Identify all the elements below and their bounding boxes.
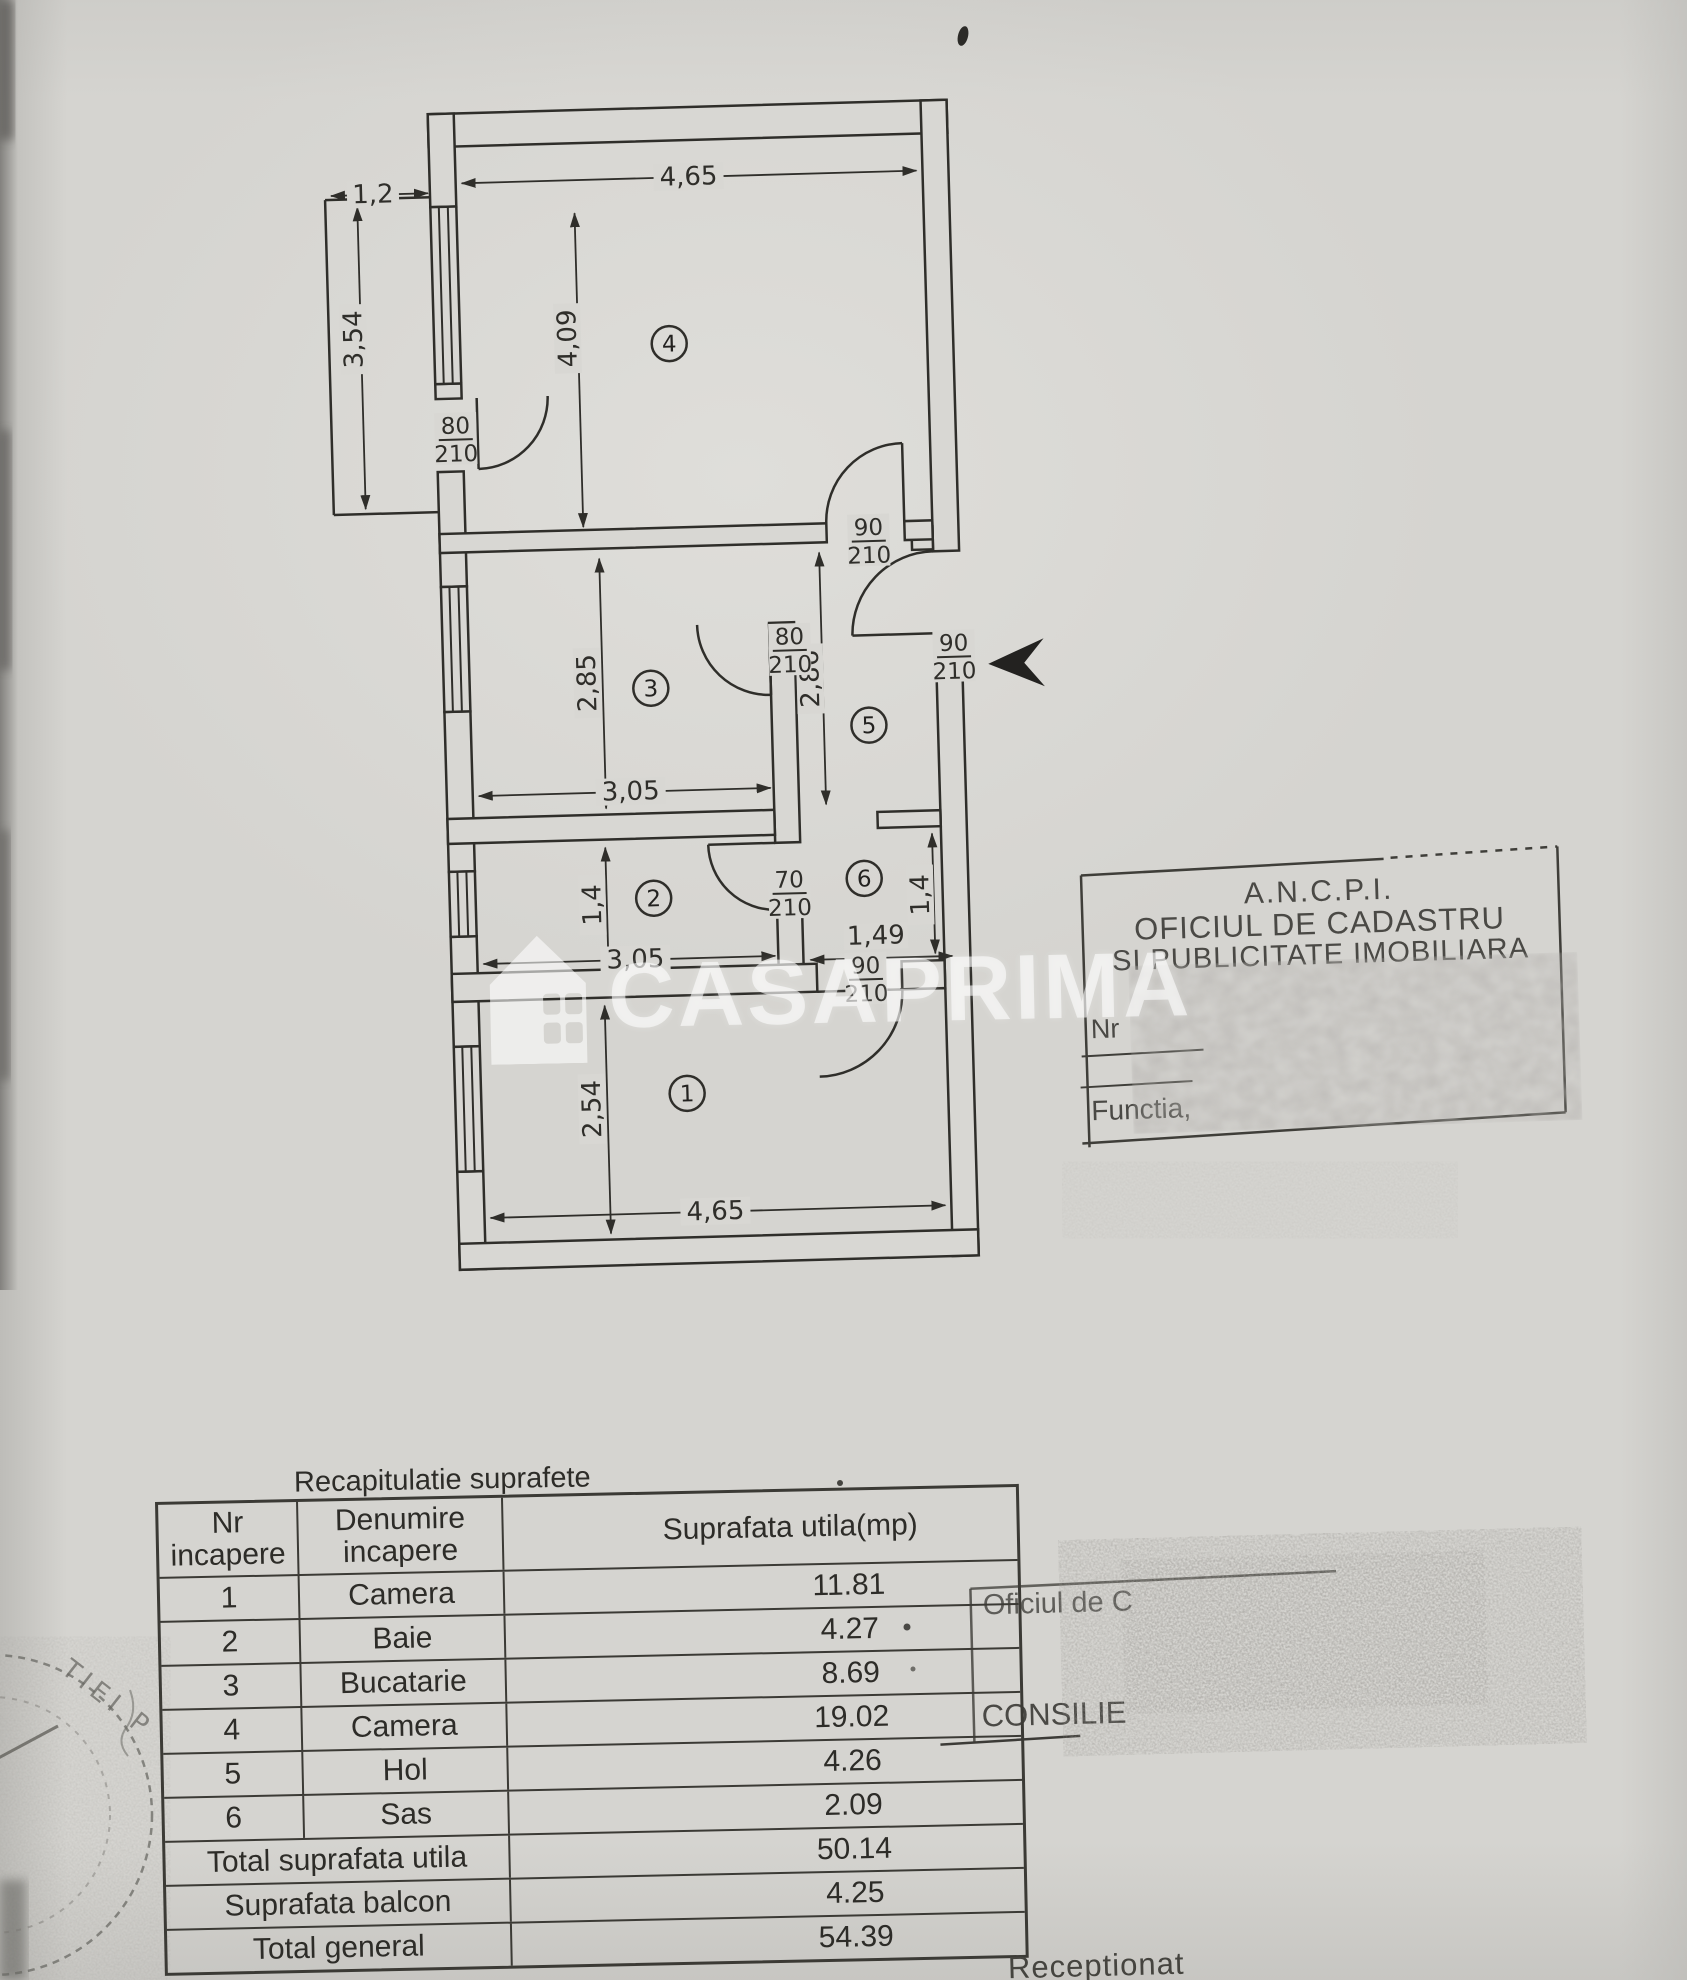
door-label-entry: 90 210 bbox=[931, 629, 976, 685]
ancpi-stamp: A.N.C.P.I. OFICIUL DE CADASTRU SI PUBLIC… bbox=[1074, 846, 1567, 1147]
room-3-number: 3 bbox=[643, 676, 658, 702]
row5-nr: 5 bbox=[163, 1752, 302, 1797]
room-2-label: 2 bbox=[636, 880, 672, 916]
door-label-room3: 80 210 bbox=[767, 623, 812, 679]
surface-table: Nr incapere Denumire incapere Suprafata … bbox=[155, 1484, 1029, 1976]
room-6-label: 6 bbox=[846, 860, 882, 896]
door-room1-height: 210 bbox=[844, 981, 889, 1008]
header-nr-line1: Nr bbox=[158, 1506, 297, 1541]
window-room1 bbox=[454, 1046, 483, 1172]
floor-plan: 1,2 3,54 4,65 4,09 2,85 3,05 2,86 1,4 3,… bbox=[323, 97, 1061, 1272]
door-entry-width: 90 bbox=[939, 630, 969, 657]
receptionat-label: Receptionat bbox=[1008, 1946, 1185, 1980]
door-room2-width: 70 bbox=[774, 867, 804, 894]
window-balcony bbox=[430, 206, 461, 384]
header-denumire-incapere: Denumire incapere bbox=[296, 1498, 502, 1574]
row1-nr: 1 bbox=[160, 1576, 299, 1621]
room-5-label: 5 bbox=[851, 707, 887, 743]
header-suprafata: Suprafata utila(mp) bbox=[501, 1487, 1017, 1570]
door-label-room4: 90 210 bbox=[846, 513, 891, 569]
door-room3-height: 210 bbox=[768, 652, 813, 679]
office-stamp: Oficiul de C CONSILIE bbox=[935, 1537, 1562, 1749]
door-balcony bbox=[477, 396, 550, 469]
total-general-value: 54.39 bbox=[510, 1913, 1026, 1966]
door-room1-width: 90 bbox=[851, 953, 881, 980]
dim-balcony-width: 1,2 bbox=[352, 179, 394, 210]
room-5-number: 5 bbox=[861, 713, 876, 739]
room-4-number: 4 bbox=[662, 331, 677, 357]
total-utila-label: Total suprafata utila bbox=[165, 1836, 509, 1885]
room-6-number: 6 bbox=[857, 866, 872, 892]
dim-balcony-height: 3,54 bbox=[338, 310, 370, 369]
door-label-room2: 70 210 bbox=[767, 866, 812, 922]
redaction-smudge bbox=[1149, 961, 1562, 1126]
row6-name: Sas bbox=[302, 1792, 508, 1838]
header-suprafata-label: Suprafata utila(mp) bbox=[563, 1508, 1017, 1547]
room-3-label: 3 bbox=[633, 670, 669, 706]
ink-speck-top bbox=[956, 25, 971, 47]
round-stamp: TIEI P bbox=[0, 1653, 159, 1977]
door-room4-width: 90 bbox=[853, 515, 883, 542]
room-4-label: 4 bbox=[651, 326, 687, 362]
window-room3 bbox=[441, 586, 470, 712]
entry-arrow-icon bbox=[988, 638, 1045, 688]
row5-name: Hol bbox=[301, 1748, 507, 1794]
room-1-number: 1 bbox=[679, 1081, 694, 1107]
row2-name: Baie bbox=[299, 1616, 505, 1662]
door-room2-height: 210 bbox=[768, 895, 813, 922]
ancpi-nr-label: Nr bbox=[1090, 1013, 1119, 1044]
dim-room2-height: 1,4 bbox=[577, 884, 608, 926]
door-label-room1: 90 210 bbox=[843, 952, 888, 1008]
door-label-balcony: 80 210 bbox=[433, 412, 478, 468]
door-entry-height: 210 bbox=[932, 658, 977, 685]
balcon-label: Suprafata balcon bbox=[166, 1880, 510, 1929]
dim-room1-height: 2,54 bbox=[577, 1080, 609, 1139]
header-nr-incapere: Nr incapere bbox=[158, 1502, 297, 1577]
total-general-label: Total general bbox=[167, 1924, 511, 1973]
dim-room1-width: 4,65 bbox=[686, 1196, 745, 1228]
row2-nr: 2 bbox=[161, 1620, 300, 1665]
door-balcony-width: 80 bbox=[440, 413, 470, 440]
header-denumire-line2: incapere bbox=[299, 1534, 503, 1570]
window-room2 bbox=[449, 871, 477, 937]
header-denumire-line1: Denumire bbox=[298, 1502, 502, 1538]
row4-name: Camera bbox=[300, 1704, 506, 1750]
row3-name: Bucatarie bbox=[299, 1660, 505, 1706]
room-1-label: 1 bbox=[669, 1075, 705, 1111]
room-2-number: 2 bbox=[646, 886, 661, 912]
faint-noise-under-stamp bbox=[1080, 1165, 1440, 1235]
row3-nr: 3 bbox=[161, 1664, 300, 1709]
dim-room3-height: 2,85 bbox=[572, 654, 604, 713]
row4-nr: 4 bbox=[162, 1708, 301, 1753]
door-room4-height: 210 bbox=[847, 542, 892, 569]
dim-room4-height: 4,09 bbox=[552, 309, 584, 368]
door-room3-width: 80 bbox=[774, 624, 804, 651]
door-room2 bbox=[708, 843, 777, 912]
door-room3 bbox=[697, 623, 771, 697]
dim-sas-width: 1,49 bbox=[846, 920, 905, 952]
door-room4 bbox=[824, 443, 904, 523]
dim-room4-width: 4,65 bbox=[659, 161, 718, 193]
dim-room3-width: 3,05 bbox=[601, 776, 660, 808]
dim-sas-height: 1,4 bbox=[905, 874, 936, 916]
dim-room2-width: 3,05 bbox=[606, 944, 665, 976]
scanned-cadastral-document: TIEI P bbox=[0, 0, 1687, 1980]
dimension-labels: 1,2 3,54 4,65 4,09 2,85 3,05 2,86 1,4 3,… bbox=[334, 156, 945, 1237]
walls bbox=[428, 100, 979, 1270]
row1-name: Camera bbox=[298, 1572, 504, 1618]
door-balcony-height: 210 bbox=[434, 441, 479, 468]
header-nr-line2: incapere bbox=[159, 1538, 298, 1573]
row6-nr: 6 bbox=[164, 1796, 303, 1841]
